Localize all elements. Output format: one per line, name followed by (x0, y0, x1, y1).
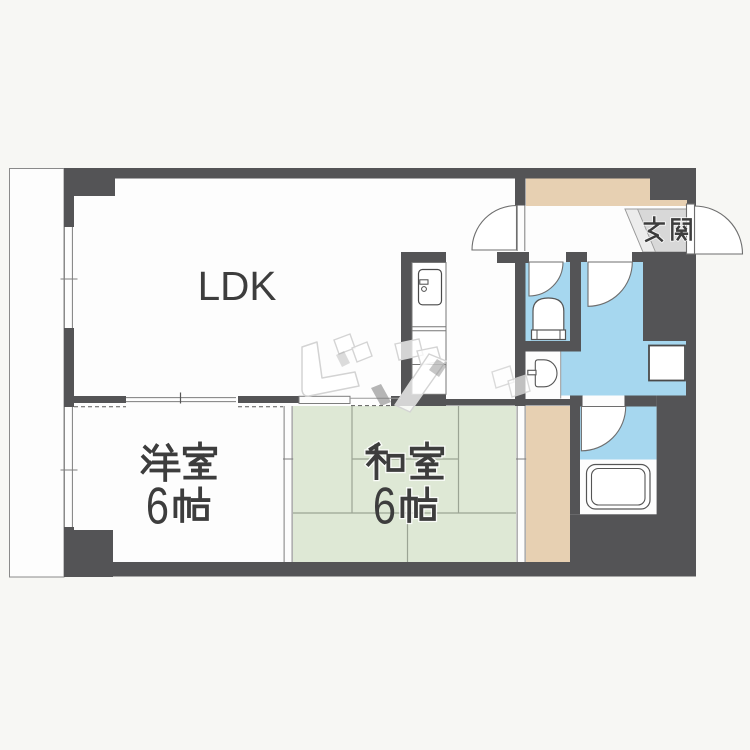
svg-text:6: 6 (146, 476, 169, 535)
svg-text:6: 6 (373, 476, 396, 535)
svg-text:LDK: LDK (198, 263, 277, 309)
